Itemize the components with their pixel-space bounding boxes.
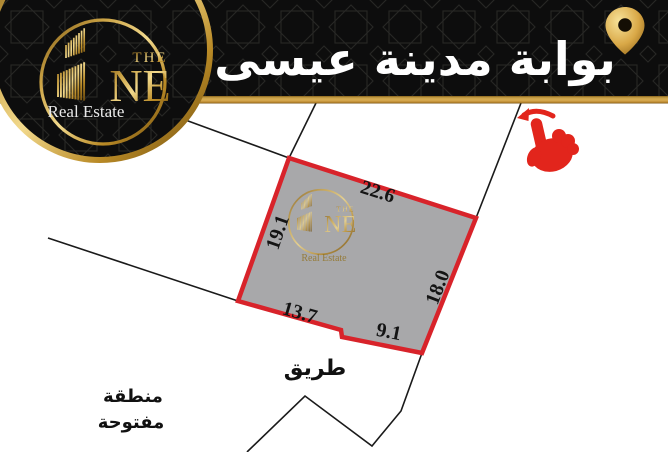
open-area-label-line1: منطقة [103,386,163,407]
parcel-line-upper-mid [289,103,316,158]
banner-title: بوابة مدينة عيسى [214,32,616,86]
open-area-label-line2: مفتوحة [98,412,165,433]
parcel-line-upper-right [476,103,521,218]
plot-polygon [238,158,476,353]
brand-logo: THE NE Real Estate [0,0,210,160]
road-label: طريق [284,356,347,381]
hand-shape [524,117,579,176]
watermark-tagline: Real Estate [301,253,347,264]
swipe-left-hand-icon [517,108,579,176]
parcel-line-lower-left [48,238,238,301]
logo-tagline: Real Estate [48,102,125,121]
dimension-bottom-right: 9.1 [374,319,403,345]
flyer-canvas: بوابة مدينة عيسى Real Estate 22.6 19.1 1… [0,0,668,452]
